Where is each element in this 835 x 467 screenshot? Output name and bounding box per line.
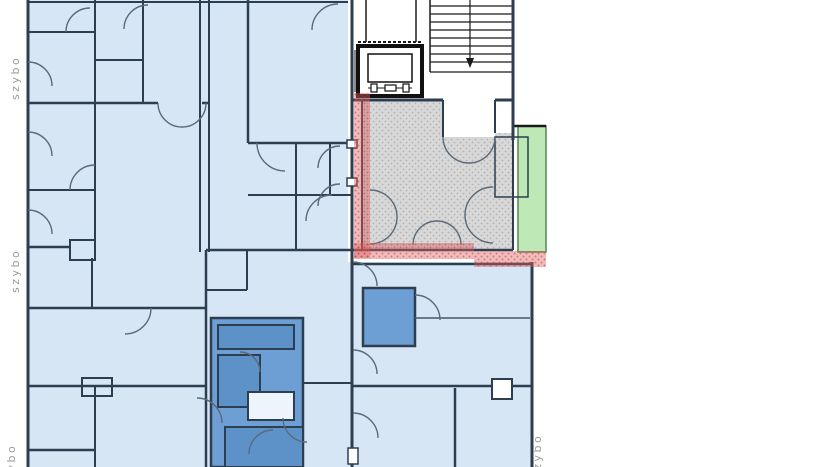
- shaft-label-top-left: szybo: [9, 56, 22, 100]
- floor-plan-page: szybo szybo szybo szybo: [0, 0, 835, 467]
- green-zone: [513, 126, 546, 252]
- shaft-label-bottom-right: szybo: [531, 434, 544, 467]
- stairwell: [354, 0, 512, 99]
- elevator-symbols: [368, 84, 412, 92]
- shaft-label-bottom-left: szybo: [5, 444, 18, 467]
- dark-room-right: [363, 288, 415, 346]
- shaft-label-mid-left: szybo: [9, 249, 22, 293]
- floor-plan-svg: szybo szybo szybo szybo: [0, 0, 835, 467]
- door-jamb: [348, 448, 358, 464]
- hatched-room: [362, 100, 528, 250]
